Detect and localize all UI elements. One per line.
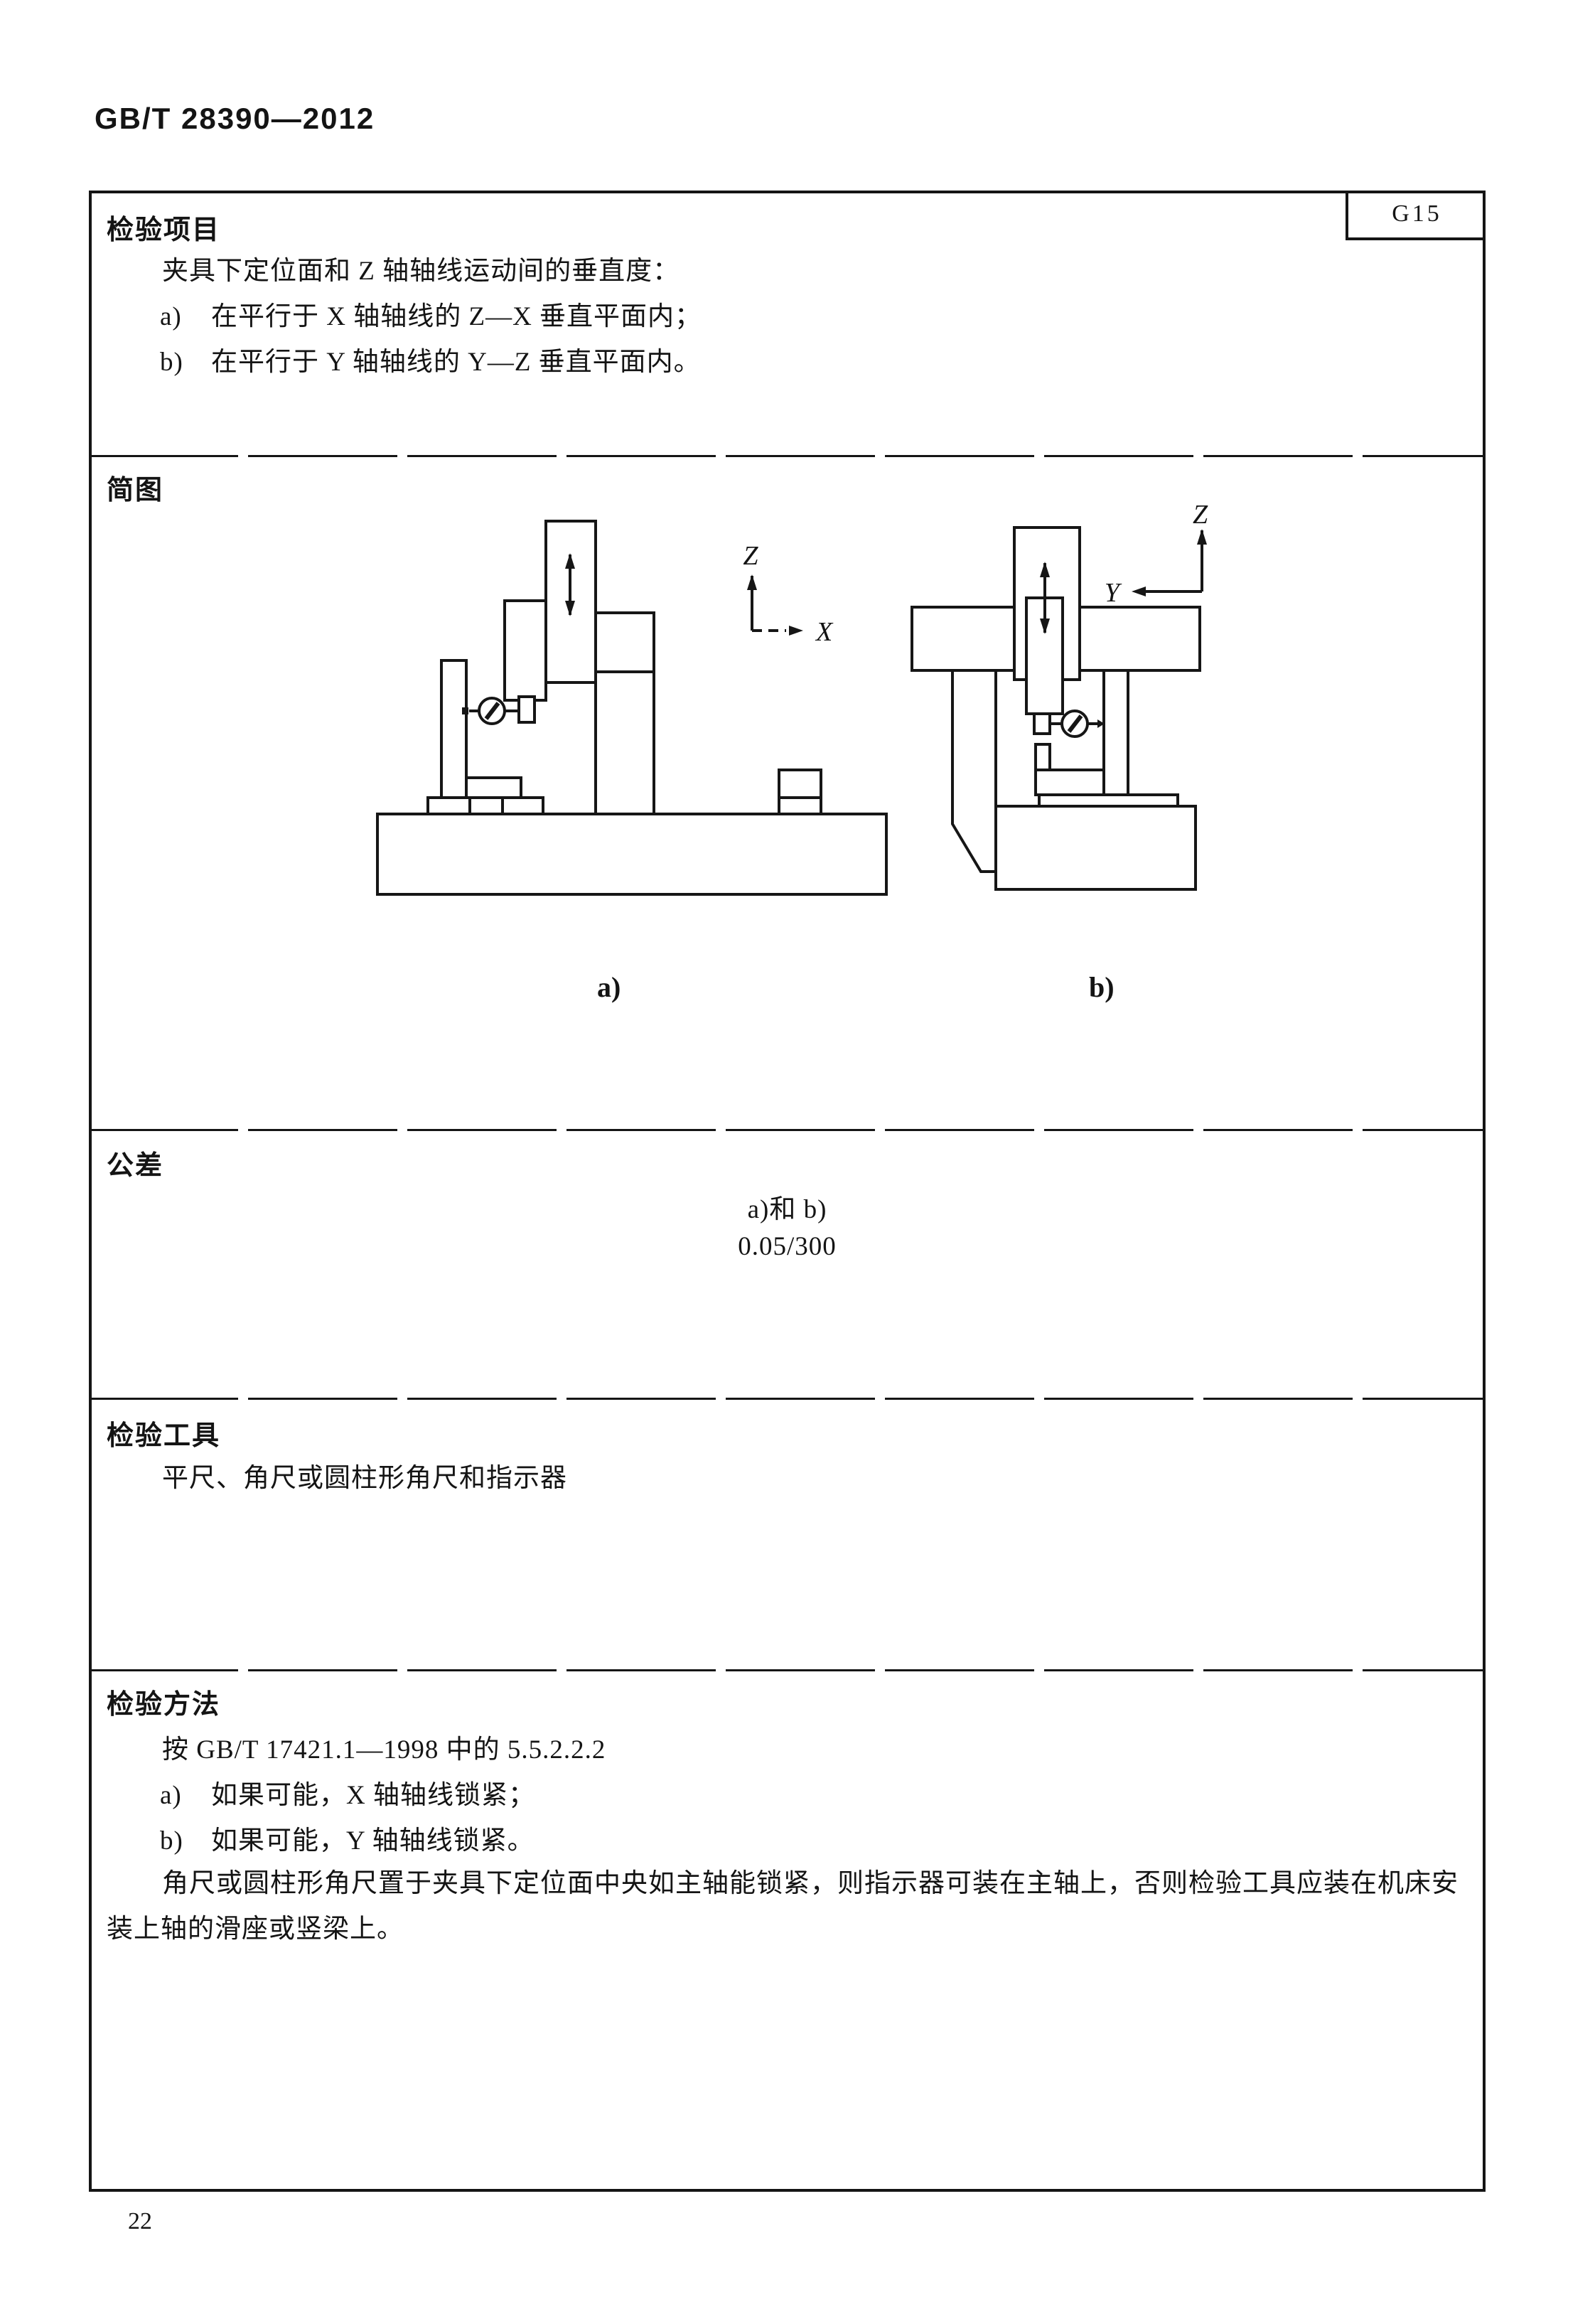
block-on-base-a <box>779 770 821 814</box>
row-divider-4 <box>89 1669 1486 1671</box>
tolerance-applies-to: a)和 b) <box>89 1187 1486 1226</box>
row-divider-1 <box>89 455 1486 457</box>
list-text-a: 如果可能，X 轴轴线锁紧； <box>211 1781 535 1810</box>
section-title-inspection-item: 检验项目 <box>107 208 220 247</box>
machine-diagrams: Z X Z Y a) b) <box>355 483 1493 1010</box>
axis-label-z-b: Z <box>1193 500 1208 530</box>
method-item-b: b)如果可能，Y 轴轴线锁紧。 <box>160 1819 535 1857</box>
method-reference-line: 按 GB/T 17421.1—1998 中的 5.5.2.2.2 <box>162 1728 606 1766</box>
square-arm-b <box>1104 656 1128 795</box>
tolerance-value: 0.05/300 <box>89 1231 1486 1262</box>
inspection-item-b: b)在平行于 Y 轴轴线的 Y—Z 垂直平面内。 <box>160 340 701 378</box>
ram-box-a <box>505 601 546 700</box>
list-marker-a: a) <box>160 1780 211 1811</box>
pad-a2 <box>470 798 503 814</box>
axis-label-y-b: Y <box>1105 578 1122 608</box>
page-number: 22 <box>128 2208 152 2235</box>
method-paragraph-line2: 装上轴的滑座或竖梁上。 <box>107 1907 404 1945</box>
item-code-cell: G15 <box>1346 191 1486 240</box>
pad-a3 <box>503 798 543 814</box>
figure-b-machine <box>912 528 1207 889</box>
column-a <box>596 672 654 814</box>
head-box-a <box>596 613 654 672</box>
row-divider-3 <box>89 1398 1486 1400</box>
section-title-tools: 检验工具 <box>107 1413 220 1452</box>
list-marker-b: b) <box>160 347 211 377</box>
tools-line: 平尺、角尺或圆柱形角尺和指示器 <box>162 1456 567 1494</box>
inspection-item-line1: 夹具下定位面和 Z 轴轴线运动间的垂直度： <box>162 249 680 287</box>
list-marker-b: b) <box>160 1826 211 1856</box>
row-divider-2 <box>89 1129 1486 1131</box>
method-paragraph-line1: 角尺或圆柱形角尺置于夹具下定位面中央如主轴能锁紧，则指示器可装在主轴上，否则检验… <box>162 1861 1459 1900</box>
axes-a <box>747 574 803 636</box>
square-arm-a <box>441 660 466 798</box>
inspection-item-a: a)在平行于 X 轴轴线的 Z—X 垂直平面内； <box>160 294 702 333</box>
list-text-b: 在平行于 Y 轴轴线的 Y—Z 垂直平面内。 <box>211 348 701 377</box>
pad-a1 <box>428 798 470 814</box>
column-b <box>952 670 996 872</box>
document-number-header: GB/T 28390—2012 <box>95 102 375 136</box>
indicator-holder-b <box>1034 714 1050 734</box>
section-title-tolerance: 公差 <box>107 1143 163 1182</box>
machine-base-b <box>996 806 1196 889</box>
list-text-b: 如果可能，Y 轴轴线锁紧。 <box>211 1826 535 1856</box>
figure-label-b: b) <box>1089 971 1115 1003</box>
machine-base-a <box>377 814 886 894</box>
dial-indicator-icon-a <box>462 698 519 724</box>
axis-label-z-a: Z <box>743 541 758 571</box>
square-step-b <box>1036 744 1050 770</box>
list-text-a: 在平行于 X 轴轴线的 Z—X 垂直平面内； <box>211 302 702 331</box>
axes-b <box>1132 529 1207 596</box>
item-code: G15 <box>1392 200 1442 227</box>
method-item-a: a)如果可能，X 轴轴线锁紧； <box>160 1773 535 1811</box>
indicator-holder-a <box>519 697 535 722</box>
plate-b <box>1039 795 1178 806</box>
scanned-standard-page: GB/T 28390—2012 G15 检验项目 夹具下定位面和 Z 轴轴线运动… <box>0 0 1595 2324</box>
section-title-method: 检验方法 <box>107 1682 220 1721</box>
section-title-diagram: 简图 <box>107 468 163 507</box>
figure-label-a: a) <box>597 971 621 1003</box>
figure-a-machine <box>377 521 886 894</box>
list-marker-a: a) <box>160 301 211 332</box>
axis-label-x-a: X <box>815 617 834 647</box>
